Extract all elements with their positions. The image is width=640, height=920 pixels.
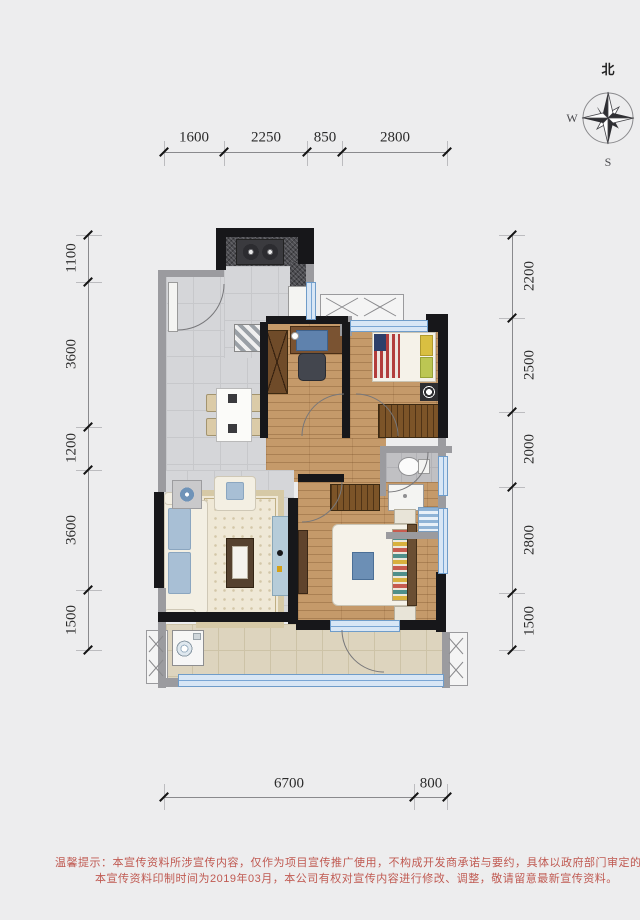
disclaimer-line-1: 温馨提示：本宣传资料所涉宣传内容，仅作为项目宣传推广使用，不构成开发商承诺与要约… (0, 855, 640, 871)
floorplan-page: 北 W E S 1600 2250 850 2800 1 (0, 0, 640, 920)
disclaimer-line-2: 本宣传资料印制时间为2019年03月，本公司有权对宣传内容进行修改、调整，敬请留… (0, 871, 640, 887)
disclaimer: 温馨提示：本宣传资料所涉宣传内容，仅作为项目宣传推广使用，不构成开发商承诺与要约… (0, 855, 640, 887)
door-arcs-overlay (0, 0, 640, 920)
